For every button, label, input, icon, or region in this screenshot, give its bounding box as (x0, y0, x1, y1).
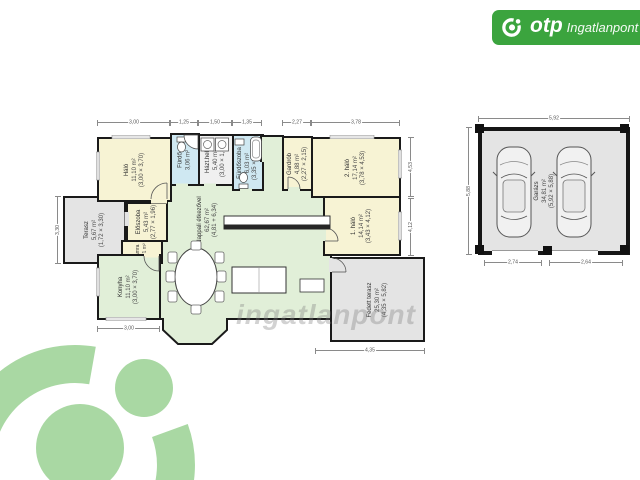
room-name: Fürdőszoba (237, 145, 245, 179)
room-label: Konyha 11,10 m² (3,00 × 3,70) (118, 270, 141, 304)
garage-pillar (620, 124, 629, 133)
room-area: 5,43 m² (143, 205, 151, 239)
room-label: Fürdő 3,06 m² (178, 149, 193, 169)
room-bedroom-1: 1. háló 14,14 m² (3,43 × 4,12) (323, 196, 401, 256)
room-label: Gardrób 4,88 m² (2,27 × 2,15) (286, 146, 309, 180)
room-dims: (3,00 × 3,70) (138, 152, 146, 186)
room-name: Háló (123, 152, 131, 186)
room-dims: (1,72 × 3,30) (98, 213, 106, 247)
room-kitchen: Konyha 11,10 m² (3,00 × 3,70) (97, 254, 161, 320)
dimension: 4,35 (315, 350, 425, 351)
room-dims: (3,78 × 4,53) (360, 150, 368, 184)
room-bedroom-2: 2. háló 17,14 m² (3,78 × 4,53) (311, 137, 401, 198)
room-label: 2. háló 17,14 m² (3,78 × 4,53) (345, 150, 368, 184)
room-name: Terasz (83, 213, 91, 247)
garage: Garázs 34,81 m² (5,92 × 5,88) (478, 127, 630, 255)
otp-logo: otp Ingatlanpont (492, 10, 640, 45)
room-area: 11,10 m² (125, 270, 133, 304)
room-area: 4,88 m² (294, 146, 302, 180)
floorplan-page: Nappali étkezővel 62,67 m² (4,81 + 6,34)… (0, 0, 640, 480)
emblem-small-dot (115, 359, 173, 417)
room-dims: (2,27 × 2,15) (301, 146, 309, 180)
room-name: Előszoba (136, 205, 144, 239)
room-hall: Előszoba 5,43 m² (2,77 × 1,96) (126, 202, 168, 242)
room-dims: (4,81 + 6,34) (211, 196, 219, 243)
room-name: Fürdő (178, 149, 186, 169)
room-wardrobe: Gardrób 4,88 m² (2,27 × 2,15) (282, 136, 313, 191)
room-area: 3,06 m² (185, 149, 193, 169)
room-dims: (2,77 × 1,96) (151, 205, 159, 239)
garage-pillar (475, 245, 484, 254)
garage-label: Garázs 34,81 m² (5,92 × 5,88) (534, 174, 557, 208)
room-area: 6,03 m² (244, 145, 252, 179)
room-dims: (5,92 × 5,88) (549, 174, 557, 208)
room-label: Előszoba 5,43 m² (2,77 × 1,96) (136, 205, 159, 239)
room-name: Konyha (118, 270, 126, 304)
room-label: Nappali étkezővel 62,67 m² (4,81 + 6,34) (196, 196, 219, 243)
room-dims: (3,35 × 1,80) (252, 145, 260, 179)
dimension: 5,92 (478, 118, 630, 119)
dimension: 3,00 (97, 122, 170, 123)
room-label: Háló 11,10 m² (3,00 × 3,70) (123, 152, 146, 186)
room-name: Gardrób (286, 146, 294, 180)
garage-pillar (475, 124, 484, 133)
room-area: 11,10 m² (131, 152, 139, 186)
room-name: 1. háló (351, 209, 359, 243)
garage-door-opening (492, 250, 538, 256)
dimension: 2,74 (484, 262, 542, 263)
otp-emblem-watermark-icon (0, 330, 240, 480)
room-label: Fürdőszoba 6,03 m² (3,35 × 1,80) (237, 145, 260, 179)
dimension: 3,30 (57, 196, 58, 264)
room-dims: (3,00 × 3,70) (133, 270, 141, 304)
room-corridor (260, 135, 284, 162)
room-area: 5,40 m² (212, 143, 220, 177)
dimension: 1,25 (170, 122, 198, 123)
room-dims: (3,43 × 4,12) (366, 209, 374, 243)
room-name: Nappali étkezővel (196, 196, 204, 243)
emblem-center-dot (36, 404, 124, 480)
room-area: 62,67 m² (204, 196, 212, 243)
room-label: Házt.hely. 5,40 m² (3,00 × 1,80) (205, 143, 228, 177)
dimension: 1,35 (232, 122, 262, 123)
room-name: Házt.hely. (205, 143, 213, 177)
otp-emblem-icon (501, 16, 524, 39)
garage-pillar (543, 246, 552, 255)
dimension: 2,64 (549, 262, 623, 263)
garage-door-opening (552, 250, 598, 256)
room-name: 2. háló (345, 150, 353, 184)
room-area: 5,67 m² (91, 213, 99, 247)
dimension: 5,88 (468, 127, 469, 255)
watermark-text: ingatlanpont (236, 299, 416, 331)
dimension: 3,78 (311, 122, 400, 123)
dimension: 1,50 (198, 122, 232, 123)
dimension: 4,53 (410, 137, 411, 197)
room-label: Terasz 5,67 m² (1,72 × 3,30) (83, 213, 106, 247)
room-bedroom: Háló 11,10 m² (3,00 × 3,70) (97, 137, 172, 202)
dimension: 2,27 (282, 122, 311, 123)
dimension: 3,00 (97, 328, 160, 329)
room-area: 14,14 m² (358, 209, 366, 243)
room-bath-small: Fürdő 3,06 m² (170, 133, 200, 186)
garage-pillar (620, 245, 629, 254)
room-area: 17,14 m² (352, 150, 360, 184)
room-dims: (3,00 × 1,80) (220, 143, 228, 177)
dimension: 4,12 (410, 198, 411, 256)
room-utility: Házt.hely. 5,40 m² (3,00 × 1,80) (198, 134, 234, 186)
logo-brand-text: otp (530, 14, 563, 38)
logo-suffix-text: Ingatlanpont (567, 20, 639, 35)
room-label: 1. háló 14,14 m² (3,43 × 4,12) (351, 209, 374, 243)
